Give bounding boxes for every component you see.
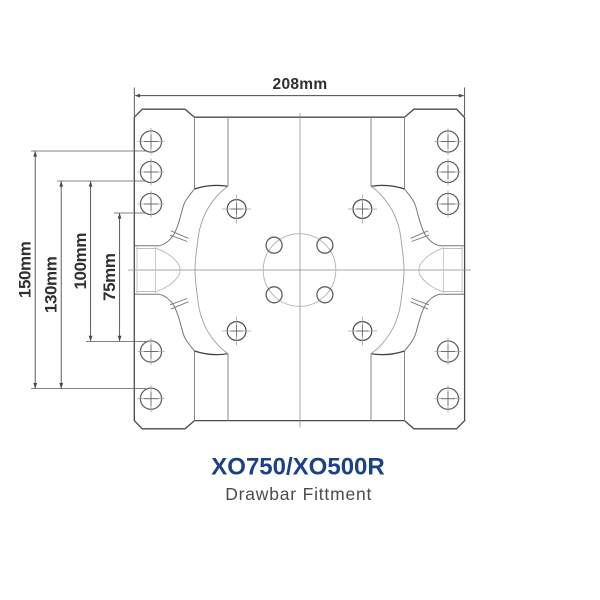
svg-text:208mm: 208mm [273,76,328,93]
svg-text:XO750/XO500R: XO750/XO500R [211,454,384,481]
svg-text:Drawbar Fittment: Drawbar Fittment [225,484,372,504]
svg-text:75mm: 75mm [100,253,119,301]
svg-text:130mm: 130mm [42,256,61,313]
svg-text:150mm: 150mm [16,241,35,298]
svg-text:100mm: 100mm [71,233,90,290]
